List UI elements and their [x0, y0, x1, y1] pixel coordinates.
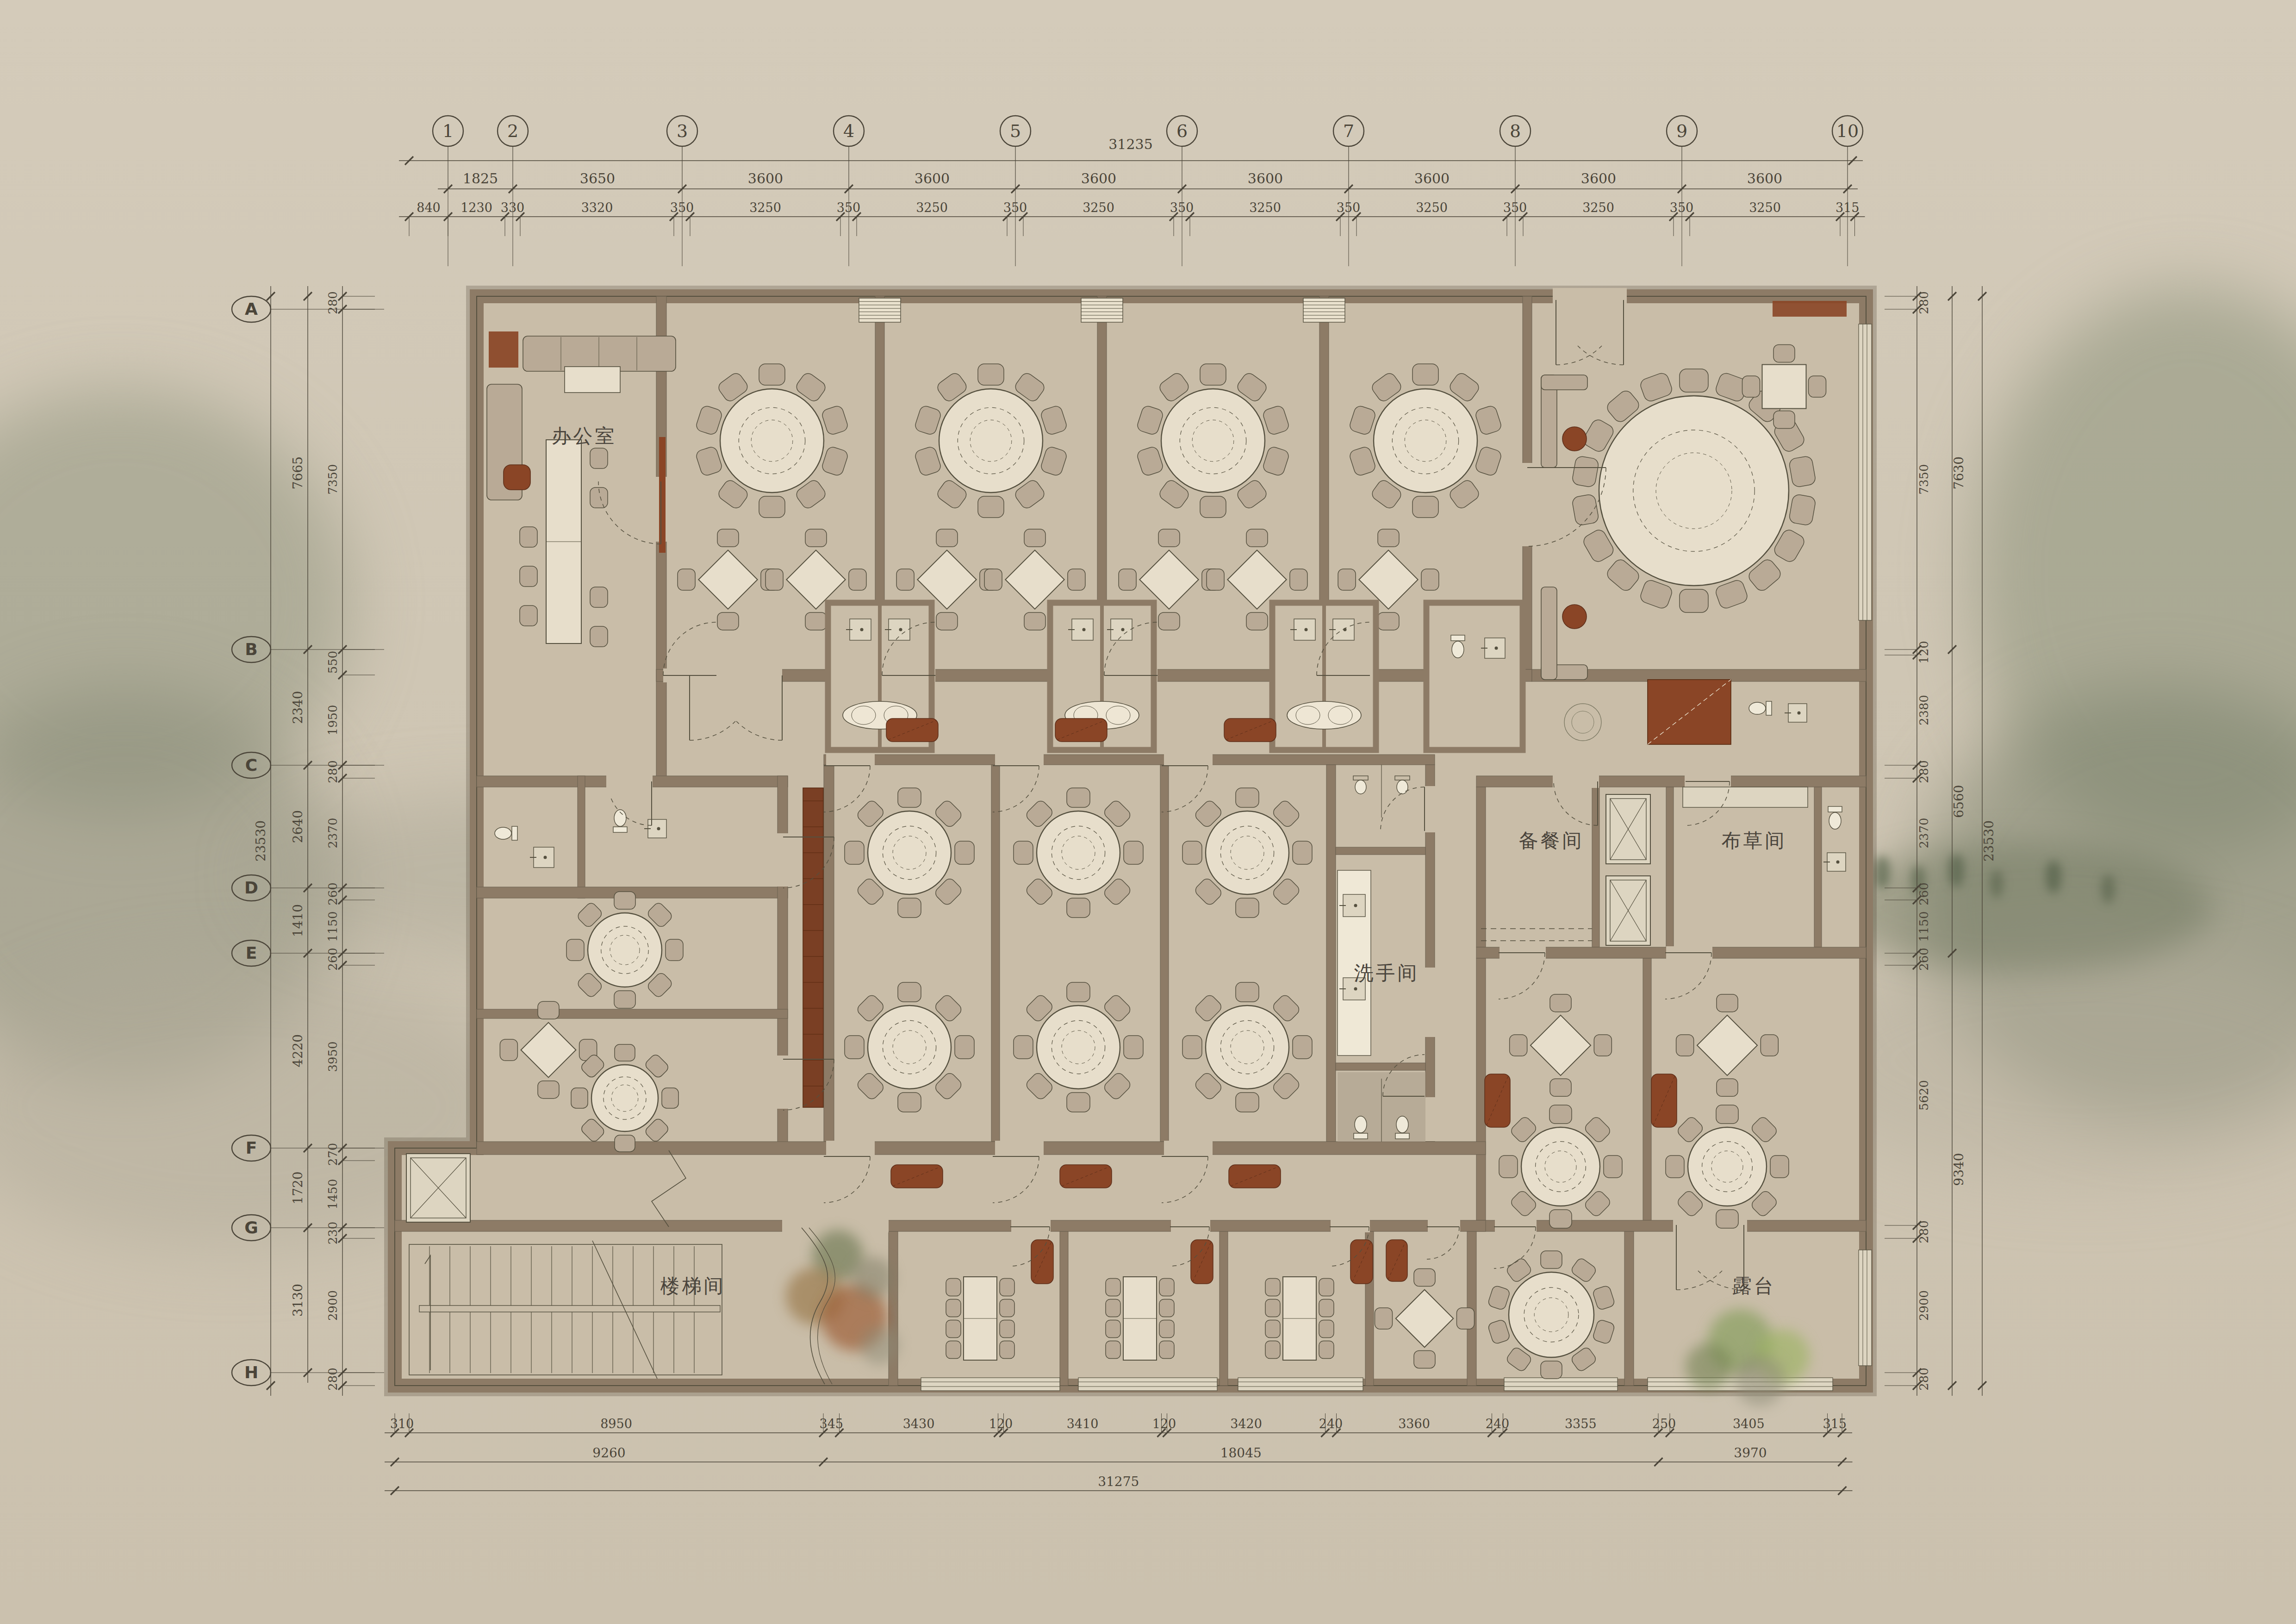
chair: [1106, 1320, 1120, 1338]
chair: [1604, 1156, 1622, 1178]
dim-label: 3430: [903, 1417, 935, 1431]
interior-wall: [477, 1009, 788, 1018]
dim-label: 280: [326, 760, 340, 783]
dim-label: 23530: [253, 820, 268, 862]
chair: [1572, 493, 1599, 526]
chair: [1319, 1341, 1334, 1359]
chair: [1158, 529, 1180, 547]
interior-wall: [1476, 787, 1486, 947]
toilet-tank: [1395, 1133, 1409, 1139]
chair: [571, 1088, 588, 1108]
toilet-tank: [613, 827, 627, 832]
chair: [1666, 1156, 1684, 1178]
dim-label: 280: [1917, 1368, 1931, 1391]
round-dining-table: [1037, 811, 1120, 894]
grid-bubble-column-label: 9: [1676, 121, 1687, 141]
grid-bubble-column-label: 3: [677, 121, 688, 141]
banquet-wc: [1426, 603, 1523, 750]
chair: [1414, 1269, 1435, 1287]
door-opening: [1553, 288, 1627, 305]
chair: [759, 496, 785, 518]
dim-label: 7350: [326, 464, 340, 494]
grid-bubble-column-label: 7: [1343, 121, 1354, 141]
chair: [759, 364, 785, 385]
dim-label: 3250: [749, 200, 781, 215]
toilet-tank: [512, 826, 517, 840]
chair: [1319, 1299, 1334, 1317]
dim-label: 3250: [1249, 200, 1281, 215]
partition-hatch: [1081, 298, 1123, 322]
chair: [614, 991, 635, 1008]
door-opening: [1164, 1141, 1213, 1156]
chair: [662, 1088, 678, 1108]
chair: [1000, 1299, 1014, 1317]
door-opening: [1428, 1219, 1460, 1232]
chair: [1236, 898, 1259, 918]
dim-label: 120: [989, 1417, 1013, 1431]
dim-label: 240: [1319, 1417, 1343, 1431]
chair: [1716, 1210, 1738, 1228]
toilet-icon: [495, 826, 517, 840]
chair: [936, 612, 958, 630]
grid-bubble-row-label: G: [244, 1218, 258, 1237]
chair: [1000, 1279, 1014, 1296]
dim-label: 31275: [1098, 1474, 1139, 1489]
chair: [1024, 529, 1045, 547]
grid-bubble-row-label: C: [245, 756, 257, 775]
dim-label: 1720: [290, 1171, 305, 1204]
chair: [1236, 982, 1259, 1002]
interior-wall: [824, 765, 834, 1142]
chair: [946, 1320, 961, 1338]
dim-label: 3600: [1581, 170, 1616, 187]
window: [1859, 324, 1872, 620]
dim-label: 260: [1917, 882, 1931, 906]
chair: [1761, 1035, 1778, 1056]
sink-drain: [1495, 647, 1498, 650]
chair: [1421, 569, 1439, 590]
round-dining-table: [1521, 1127, 1600, 1206]
sink-drain: [1354, 904, 1357, 907]
dim-label: 3250: [916, 200, 948, 215]
dim-label: 1950: [326, 705, 340, 735]
chair: [1788, 456, 1816, 488]
chair: [1499, 1156, 1518, 1178]
dim-label: 3410: [1067, 1417, 1099, 1431]
dim-label: 2640: [290, 810, 305, 843]
chair: [1124, 841, 1143, 864]
chair: [1182, 841, 1202, 864]
chair: [1106, 1299, 1120, 1317]
dim-label: 18045: [1220, 1445, 1262, 1461]
dim-label: 4220: [290, 1034, 305, 1067]
chair: [1549, 1210, 1572, 1228]
toilet-bowl: [1396, 1116, 1408, 1133]
door-opening: [1171, 1219, 1210, 1232]
dim-label: 2380: [1917, 695, 1931, 725]
door-opening: [1425, 1097, 1436, 1141]
chair: [1067, 1093, 1090, 1112]
chair: [1319, 1279, 1334, 1296]
chair: [1159, 1279, 1174, 1296]
chair: [1014, 841, 1033, 864]
room-label-washroom: 洗手间: [1354, 962, 1419, 984]
chair: [849, 569, 866, 590]
dim-label: 350: [1170, 200, 1194, 215]
sink-drain: [657, 827, 660, 831]
chair: [936, 529, 958, 547]
tree: [1686, 1343, 1732, 1390]
room-label-terrace: 露台: [1732, 1274, 1776, 1297]
tree: [852, 1257, 894, 1299]
chair: [678, 569, 695, 590]
chair: [1293, 841, 1312, 864]
office-armchair: [504, 465, 530, 490]
dim-label: 345: [819, 1417, 843, 1431]
window-band: [1238, 1378, 1363, 1391]
window-band: [1078, 1378, 1217, 1391]
chair: [1182, 1036, 1202, 1059]
sink-drain: [1121, 628, 1125, 631]
service-closet: [1648, 680, 1731, 744]
chair: [1158, 612, 1180, 630]
dim-label: 1150: [1917, 911, 1931, 942]
stool: [1562, 605, 1587, 629]
office-sofa: [523, 336, 676, 371]
sofa: [1541, 587, 1557, 680]
chair: [898, 1093, 921, 1112]
dim-label: 350: [1003, 200, 1027, 215]
chair: [1159, 1341, 1174, 1359]
chair: [1510, 1035, 1527, 1056]
sink-drain: [1354, 987, 1357, 991]
door-opening: [1331, 1219, 1370, 1232]
interior-wall: [1643, 958, 1651, 1220]
urinal-bowl: [1397, 780, 1408, 794]
dim-label: 3250: [1749, 200, 1781, 215]
chair: [1024, 612, 1045, 630]
chair: [1000, 1341, 1014, 1359]
dim-label: 23530: [1981, 820, 1997, 862]
chair: [1236, 1093, 1259, 1112]
tree: [860, 1326, 899, 1365]
grid-bubble-row-label: F: [246, 1138, 257, 1157]
interior-wall: [1814, 787, 1822, 947]
chair: [1159, 1320, 1174, 1338]
chair: [1265, 1299, 1280, 1317]
basin-counter: [1287, 701, 1361, 729]
chair: [805, 529, 827, 547]
square-table: [1762, 365, 1806, 409]
round-dining-table: [1206, 1006, 1289, 1089]
dim-label: 350: [1337, 200, 1361, 215]
sink-drain: [1798, 712, 1801, 715]
chair: [896, 569, 914, 590]
chair: [538, 1081, 559, 1099]
chair: [984, 569, 1002, 590]
round-dining-table: [868, 811, 951, 894]
toilet-tank: [1828, 806, 1842, 812]
chair: [590, 587, 608, 607]
dim-label: 3650: [580, 170, 615, 187]
dim-label: 6560: [1951, 785, 1966, 818]
chair: [1716, 1105, 1738, 1124]
interior-wall: [824, 755, 1435, 765]
grid-bubble-row-label: D: [244, 878, 258, 897]
chair: [1676, 1035, 1694, 1056]
interior-wall: [1060, 1231, 1068, 1386]
toilet-icon: [1354, 1116, 1368, 1139]
toilet-icon: [613, 810, 627, 832]
chair: [1770, 1156, 1789, 1178]
chair: [1717, 994, 1738, 1012]
grid-bubble-column-label: 5: [1010, 121, 1021, 141]
chair: [1550, 1079, 1571, 1096]
window-band: [1859, 1250, 1872, 1366]
grid-bubble-row-label: E: [246, 943, 257, 962]
dim-label: 350: [837, 200, 861, 215]
door-opening: [826, 754, 875, 766]
window-band: [1504, 1378, 1618, 1391]
toilet-tank: [1451, 635, 1465, 641]
interior-wall: [1624, 1231, 1634, 1386]
door-opening: [1517, 463, 1537, 546]
chair: [520, 527, 537, 547]
vip-runner-rug: [1773, 301, 1847, 317]
chair: [1106, 1341, 1120, 1359]
grid-bubble-column-label: 6: [1176, 121, 1188, 141]
dim-label: 260: [1917, 948, 1931, 971]
office-rug: [489, 331, 518, 368]
chair: [1412, 496, 1438, 518]
room-label-stairwell: 楼梯间: [660, 1274, 726, 1297]
door-opening: [826, 1141, 875, 1156]
chair: [615, 1044, 635, 1061]
sink-drain: [1083, 628, 1086, 631]
chair: [1680, 589, 1708, 612]
toilet-bowl: [1452, 641, 1464, 658]
linen-shelf: [1683, 787, 1808, 807]
round-dining-table: [868, 1006, 951, 1089]
chair: [1541, 1251, 1562, 1268]
chair: [955, 1036, 974, 1059]
toilet-bowl: [1749, 702, 1766, 714]
dim-label: 550: [326, 651, 340, 674]
door-opening: [1425, 786, 1436, 832]
interior-wall: [395, 1220, 1486, 1231]
chair: [538, 1001, 559, 1019]
dim-label: 7630: [1951, 456, 1966, 489]
chair: [1414, 1350, 1435, 1368]
interior-wall: [1476, 776, 1866, 787]
dim-label: 270: [326, 1143, 340, 1166]
door-opening: [1011, 1219, 1051, 1232]
dim-label: 3600: [1747, 170, 1782, 187]
round-dining-table: [720, 389, 824, 493]
chair: [590, 448, 608, 468]
door-opening: [1495, 1219, 1537, 1232]
page: { "grid": { "columns": ["1","2","3","4",…: [0, 0, 2296, 1624]
dim-label: 280: [1917, 291, 1931, 314]
chair: [500, 1039, 517, 1061]
dim-label: 330: [501, 200, 525, 215]
dim-label: 9260: [592, 1445, 625, 1461]
sink-drain: [1305, 628, 1308, 631]
chair: [1207, 569, 1224, 590]
stool: [1562, 427, 1587, 451]
chair: [1773, 411, 1795, 429]
dim-label: 7350: [1917, 464, 1931, 494]
chair: [1067, 898, 1090, 918]
dim-label: 310: [390, 1417, 414, 1431]
chair: [520, 566, 537, 587]
chair: [1068, 569, 1085, 590]
sink-drain: [1836, 861, 1840, 864]
chair: [1106, 1279, 1120, 1296]
dim-label: 3950: [326, 1041, 340, 1072]
dim-label: 260: [326, 948, 340, 971]
chair: [1236, 788, 1259, 807]
urinal-bowl: [1355, 780, 1366, 794]
toilet-tank: [1354, 1133, 1368, 1139]
window-band: [921, 1378, 1060, 1391]
chair: [845, 1036, 864, 1059]
door-opening: [777, 833, 789, 887]
office-board: [565, 367, 620, 393]
dim-label: 3250: [1582, 200, 1614, 215]
chair: [765, 569, 783, 590]
chair: [1067, 982, 1090, 1002]
sink-drain: [860, 628, 864, 631]
dim-label: 3600: [1081, 170, 1116, 187]
sink-drain: [899, 628, 902, 631]
partition-hatch: [859, 298, 901, 322]
interior-wall: [1666, 787, 1674, 947]
chair: [1200, 496, 1226, 518]
door-opening: [1164, 754, 1213, 766]
toilet-bowl: [495, 827, 511, 839]
chair: [845, 841, 864, 864]
toilet-icon: [1749, 701, 1772, 715]
window: [921, 1378, 1060, 1391]
chair: [717, 529, 739, 547]
interior-wall: [1476, 958, 1486, 1220]
chair: [898, 788, 921, 807]
chair: [955, 841, 974, 864]
window: [1859, 1250, 1872, 1366]
dim-label: 2370: [326, 818, 340, 848]
round-dining-table: [1599, 396, 1789, 586]
chair: [1375, 1308, 1393, 1329]
chair: [1200, 364, 1226, 385]
dim-label: 3320: [581, 200, 613, 215]
wc-wall: [1426, 603, 1523, 750]
chair: [1014, 1036, 1033, 1059]
room-label-linen: 布草间: [1722, 829, 1787, 852]
round-dining-table: [939, 389, 1043, 493]
dim-label: 2900: [326, 1290, 340, 1321]
chair: [1265, 1341, 1280, 1359]
dim-label: 280: [326, 1368, 340, 1391]
dim-label: 3405: [1733, 1417, 1765, 1431]
chair: [1265, 1279, 1280, 1296]
door-opening: [1553, 775, 1599, 788]
chair: [1594, 1035, 1612, 1056]
chair: [946, 1279, 961, 1296]
grid-bubble-row-label: H: [244, 1363, 258, 1382]
round-dining-table: [1037, 1006, 1120, 1089]
chair: [566, 939, 584, 961]
grid-bubble-column-label: 1: [442, 121, 454, 141]
chair: [1159, 1299, 1174, 1317]
chair: [1378, 612, 1399, 630]
dim-label: 350: [1503, 200, 1527, 215]
grid-bubble-column-label: 8: [1510, 121, 1521, 141]
dim-label: 3250: [1083, 200, 1114, 215]
toilet-bowl: [1355, 1116, 1367, 1133]
interior-wall: [991, 765, 1000, 1142]
chair: [1124, 1036, 1143, 1059]
dim-label: 120: [1917, 641, 1931, 664]
vestibule: [1272, 603, 1376, 750]
office-wall-cabinet: [659, 437, 666, 553]
dim-label: 120: [1152, 1417, 1176, 1431]
door-opening: [606, 775, 653, 788]
chair: [717, 612, 739, 630]
chair: [946, 1299, 961, 1317]
window: [1238, 1378, 1363, 1391]
dim-label: 3420: [1230, 1417, 1262, 1431]
dim-label: 31235: [1108, 136, 1152, 152]
dim-label: 1230: [460, 200, 492, 215]
stairwell: [409, 1241, 722, 1379]
dim-label: 250: [1652, 1417, 1676, 1431]
chair: [1246, 612, 1268, 630]
dim-label: 260: [326, 882, 340, 906]
round-dining-table: [1161, 389, 1265, 493]
chair: [1742, 376, 1760, 397]
chair: [1550, 994, 1571, 1012]
chair: [1290, 569, 1307, 590]
sofa: [1541, 375, 1587, 390]
dim-label: 280: [1917, 760, 1931, 783]
door-opening: [995, 1141, 1044, 1156]
chair: [1338, 569, 1356, 590]
room-label-office: 办公室: [552, 425, 617, 447]
dim-label: 5620: [1917, 1080, 1931, 1111]
dim-label: 280: [326, 291, 340, 314]
chair: [1456, 1308, 1474, 1329]
chair: [1809, 376, 1826, 397]
dim-label: 2900: [1917, 1290, 1931, 1321]
round-dining-table: [588, 913, 662, 987]
chair: [1788, 493, 1816, 526]
round-dining-table: [1688, 1127, 1767, 1206]
round-dining-table: [1509, 1272, 1594, 1357]
dim-label: 1410: [290, 904, 305, 937]
grid-bubble-column-label: 4: [843, 121, 854, 141]
chair: [1319, 1320, 1334, 1338]
interior-wall: [1592, 787, 1599, 947]
grid-bubble-row-label: A: [245, 300, 258, 319]
dim-label: 3360: [1398, 1417, 1430, 1431]
door-opening: [1425, 968, 1436, 1037]
chair: [805, 612, 827, 630]
interior-wall: [578, 776, 585, 898]
interior-wall: [1220, 1231, 1228, 1386]
toilet-bowl: [1829, 812, 1841, 829]
door-opening: [995, 754, 1044, 766]
